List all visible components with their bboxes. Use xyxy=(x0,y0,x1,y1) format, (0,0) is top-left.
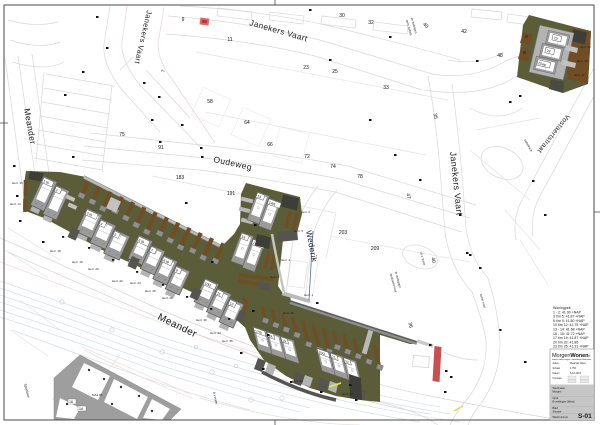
svg-text:64: 64 xyxy=(244,120,250,126)
svg-text:Herr. 42: Herr. 42 xyxy=(292,379,303,383)
svg-text:Herr. 13: Herr. 13 xyxy=(580,45,591,49)
svg-text:Schaal: Schaal xyxy=(553,367,561,370)
svg-text:Herr. 40: Herr. 40 xyxy=(283,311,294,315)
svg-text:Werknummer: Werknummer xyxy=(553,415,569,419)
svg-text:Herr. 6: Herr. 6 xyxy=(301,210,310,214)
svg-text:S-01: S-01 xyxy=(578,413,592,420)
svg-text:91: 91 xyxy=(158,145,164,151)
svg-text:Herr. 17: Herr. 17 xyxy=(574,73,585,77)
svg-text:Herr. 28: Herr. 28 xyxy=(162,296,173,300)
svg-text:wonen zoals morgen - betaalbaa: wonen zoals morgen - betaalbaar duurzaam xyxy=(552,358,591,361)
svg-text:48: 48 xyxy=(497,53,503,59)
svg-text:Herr. 14: Herr. 14 xyxy=(10,202,21,206)
svg-text:11: 11 xyxy=(227,37,232,43)
svg-text:58: 58 xyxy=(207,99,213,105)
svg-text:Herr. 15: Herr. 15 xyxy=(12,181,23,185)
svg-text:Herr. 19: Herr. 19 xyxy=(577,59,588,63)
svg-text:Herr. 1: Herr. 1 xyxy=(304,293,313,297)
svg-text:74: 74 xyxy=(330,164,336,170)
svg-text:Opdr: Opdr xyxy=(553,396,559,400)
svg-text:Herr. 16: Herr. 16 xyxy=(72,260,83,264)
svg-text:Herr. 5: Herr. 5 xyxy=(294,229,303,233)
svg-text:32: 32 xyxy=(368,20,374,26)
svg-text:Herr. 24: Herr. 24 xyxy=(130,281,141,285)
svg-text:Herr. 4: Herr. 4 xyxy=(281,258,290,262)
svg-text:72: 72 xyxy=(304,154,310,160)
svg-text:Herr. 22: Herr. 22 xyxy=(112,279,123,283)
svg-text:Situatie: Situatie xyxy=(553,410,562,414)
svg-text:Meander West: Meander West xyxy=(570,362,586,365)
svg-text:Datum: Datum xyxy=(553,372,560,375)
svg-text:1A: 1A xyxy=(79,407,84,411)
svg-text:8-10-2015: 8-10-2015 xyxy=(570,372,582,375)
svg-text:183: 183 xyxy=(176,175,185,181)
svg-text:66: 66 xyxy=(267,142,273,148)
svg-text:25: 25 xyxy=(332,69,338,75)
svg-text:B-veldingen (West): B-veldingen (West) xyxy=(553,400,575,404)
svg-text:Herr. 44: Herr. 44 xyxy=(342,392,353,396)
svg-text:209: 209 xyxy=(371,246,380,252)
svg-text:Herr. 20: Herr. 20 xyxy=(88,267,99,271)
svg-text:Herr. 34: Herr. 34 xyxy=(210,331,221,335)
svg-text:Morgen: Morgen xyxy=(553,390,562,394)
svg-text:1:750: 1:750 xyxy=(570,367,577,370)
svg-text:Herr. 2: Herr. 2 xyxy=(270,275,279,279)
svg-text:203: 203 xyxy=(339,230,348,236)
svg-text:42: 42 xyxy=(461,29,467,35)
svg-text:Formaat: Formaat xyxy=(553,377,562,380)
svg-text:78: 78 xyxy=(357,174,363,180)
svg-text:33: 33 xyxy=(383,85,389,91)
svg-text:23 t/m 25: 41.91 +NAP: 23 t/m 25: 41.91 +NAP xyxy=(553,345,589,349)
svg-text:Blad: Blad xyxy=(553,406,559,410)
svg-text:23: 23 xyxy=(303,65,309,71)
svg-text:75: 75 xyxy=(119,132,125,138)
svg-text:Herr. 26: Herr. 26 xyxy=(145,289,156,293)
svg-text:9: 9 xyxy=(182,17,185,23)
svg-text:MA4.05: MA4.05 xyxy=(92,393,103,397)
svg-text:Adres: Adres xyxy=(553,362,560,365)
svg-text:30: 30 xyxy=(339,13,345,19)
svg-text:Herr. 36: Herr. 36 xyxy=(222,339,233,343)
svg-text:Herr. 30: Herr. 30 xyxy=(196,318,207,322)
svg-text:Herr. 18: Herr. 18 xyxy=(50,249,61,253)
svg-text:Werknaam: Werknaam xyxy=(553,386,566,390)
svg-text:191: 191 xyxy=(227,191,236,197)
svg-text:16: 16 xyxy=(69,400,73,404)
